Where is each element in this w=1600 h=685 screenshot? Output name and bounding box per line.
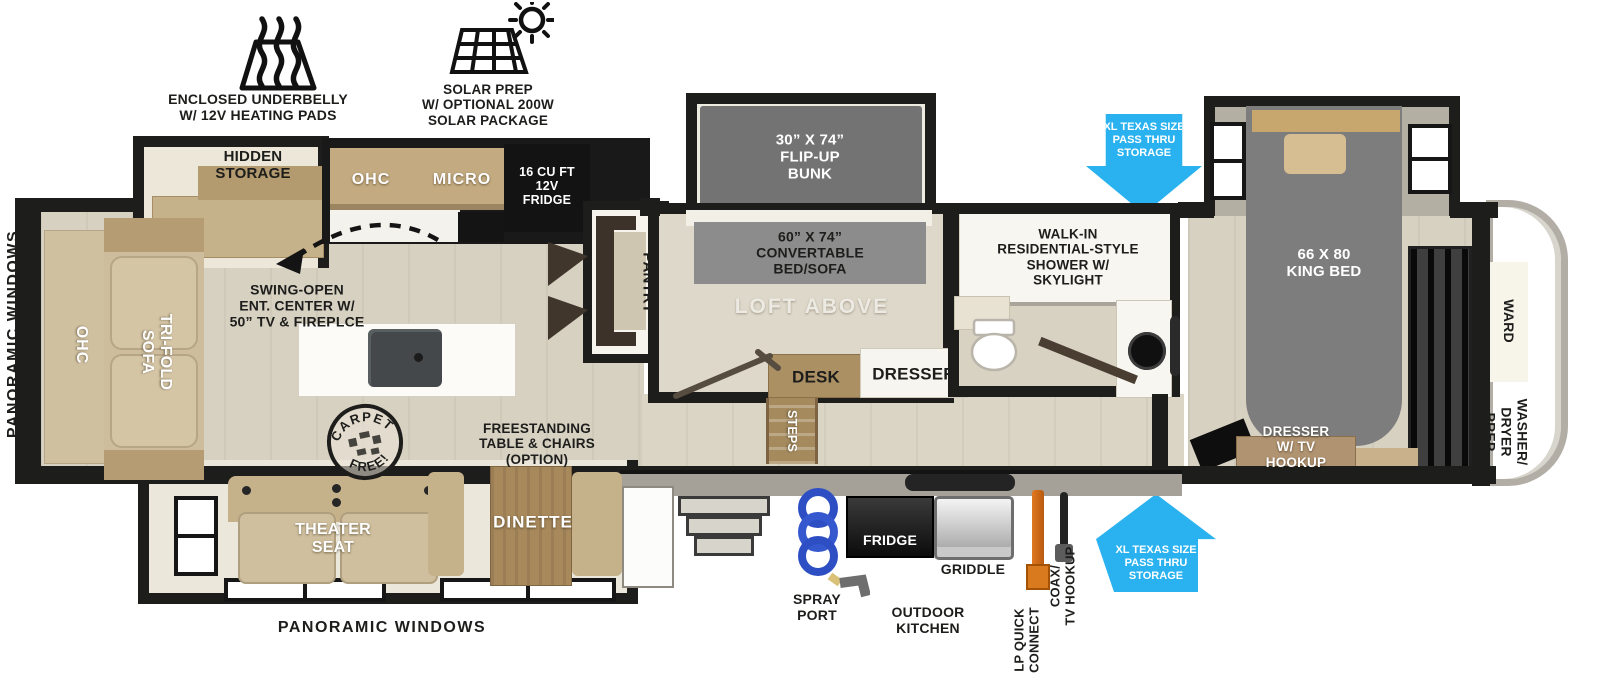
theater-cupholder-1 (242, 486, 251, 495)
dinette-bench-right (572, 472, 622, 576)
outdoor-fridge-label: FRIDGE (863, 533, 917, 549)
coax-tv-label: COAX/ TV HOOKUP (1048, 546, 1077, 625)
outdoor-kitchen-cutout (905, 474, 1015, 491)
ent-center-wedges (548, 240, 606, 344)
bath-mirror (1170, 316, 1180, 376)
king-bed-label: 66 X 80 KING BED (1287, 247, 1362, 281)
underbelly-label: ENCLOSED UNDERBELLY W/ 12V HEATING PADS (168, 92, 348, 124)
corridor-floor (640, 394, 1184, 468)
dinette-label: DINETTE (493, 512, 573, 531)
solar-panel-icon (446, 2, 554, 86)
dinette-bench-left (428, 472, 464, 576)
kitchen-micro-label: MICRO (433, 171, 491, 189)
flip-up-bunk-label: 30” X 74” FLIP-UP BUNK (776, 133, 845, 184)
griddle-label: GRIDDLE (941, 562, 1005, 578)
vanity-sink (1128, 332, 1166, 370)
wall-top-left (15, 198, 137, 212)
lp-quick-connect-label: LP QUICK CONNECT (1012, 607, 1041, 673)
outdoor-griddle (934, 496, 1014, 560)
shower-label: WALK-IN RESIDENTIAL-STYLE SHOWER W/ SKYL… (997, 227, 1138, 288)
lp-quick-connect-pipe (1032, 490, 1044, 572)
theater-seat-label: THEATER SEAT (295, 521, 371, 557)
sofa-wood-bottom (104, 450, 204, 480)
spray-port-label: SPRAY PORT (793, 592, 841, 624)
desk-label: DESK (792, 367, 840, 386)
solar-label: SOLAR PREP W/ OPTIONAL 200W SOLAR PACKAG… (422, 82, 554, 128)
outdoor-kitchen-label: OUTDOOR KITCHEN (892, 605, 965, 637)
ward-label: WARD (1500, 299, 1516, 343)
pass-thru-front-arrow: XL TEXAS SIZE PASS THRU STORAGE (1086, 114, 1202, 214)
freestanding-table-label: FREESTANDING TABLE & CHAIRS (OPTION) (479, 421, 595, 467)
wall-kitchen-bunk-join (640, 198, 660, 216)
coax-cable (1060, 492, 1068, 548)
tri-fold-sofa-label: TRI-FOLD SOFA (138, 314, 174, 390)
dresser-tv-label: DRESSER W/ TV HOOKUP (1263, 424, 1330, 470)
rear-ohc-label: OHC (72, 326, 90, 365)
bed-pillow (1284, 134, 1346, 174)
bed-headboard (1252, 110, 1400, 132)
heating-pads-icon (232, 2, 322, 94)
bedroom-slide-window-left (1210, 122, 1246, 200)
dresser-label: DRESSER (872, 364, 956, 383)
cooktop (458, 212, 504, 242)
pass-thru-rear-label: XL TEXAS SIZE PASS THRU STORAGE (1096, 544, 1216, 583)
swing-open-arrow (258, 198, 448, 288)
wall-bedroom-top-1 (1178, 202, 1214, 218)
washer-dryer-label: WASHER/ DRYER PREP (1482, 399, 1529, 466)
swing-ent-label: SWING-OPEN ENT. CENTER W/ 50” TV & FIREP… (230, 282, 365, 329)
carpet-free-badge: CARPET FREE! (318, 395, 413, 490)
fridge-12v-label: 16 CU FT 12V FRIDGE (519, 165, 575, 207)
wardrobe-closet (1408, 246, 1472, 474)
panoramic-windows-left-label: PANORAMIC WINDOWS (5, 230, 23, 438)
convertible-bed-label: 60” X 74” CONVERTABLE BED/SOFA (756, 229, 864, 276)
bedroom-slide-window-right (1408, 124, 1452, 194)
kitchen-ohc-label: OHC (352, 171, 391, 189)
theater-cupholder-3 (332, 498, 341, 507)
entry-steps (678, 492, 770, 558)
pantry-label: PANTRY (639, 252, 656, 313)
island-sink (368, 329, 442, 387)
pantry-shelf-top (596, 216, 636, 230)
steps-label: STEPS (785, 410, 799, 452)
toilet (966, 318, 1024, 374)
slide-window-side (174, 496, 218, 576)
pass-thru-rear-arrow: XL TEXAS SIZE PASS THRU STORAGE (1096, 494, 1216, 592)
loft-above-label: LOFT ABOVE (735, 295, 890, 319)
wall-corridor-bedroom (1152, 394, 1168, 470)
sofa-wood-top (104, 218, 204, 256)
entry-door (622, 486, 674, 588)
rv-floorplan-diagram: XL TEXAS SIZE PASS THRU STORAGE XL TEXAS… (0, 0, 1600, 685)
hidden-storage-label: HIDDEN STORAGE (215, 149, 290, 183)
loft-ladder (672, 348, 787, 400)
panoramic-windows-bottom-label: PANORAMIC WINDOWS (278, 619, 486, 637)
pass-thru-front-label: XL TEXAS SIZE PASS THRU STORAGE (1086, 121, 1202, 160)
